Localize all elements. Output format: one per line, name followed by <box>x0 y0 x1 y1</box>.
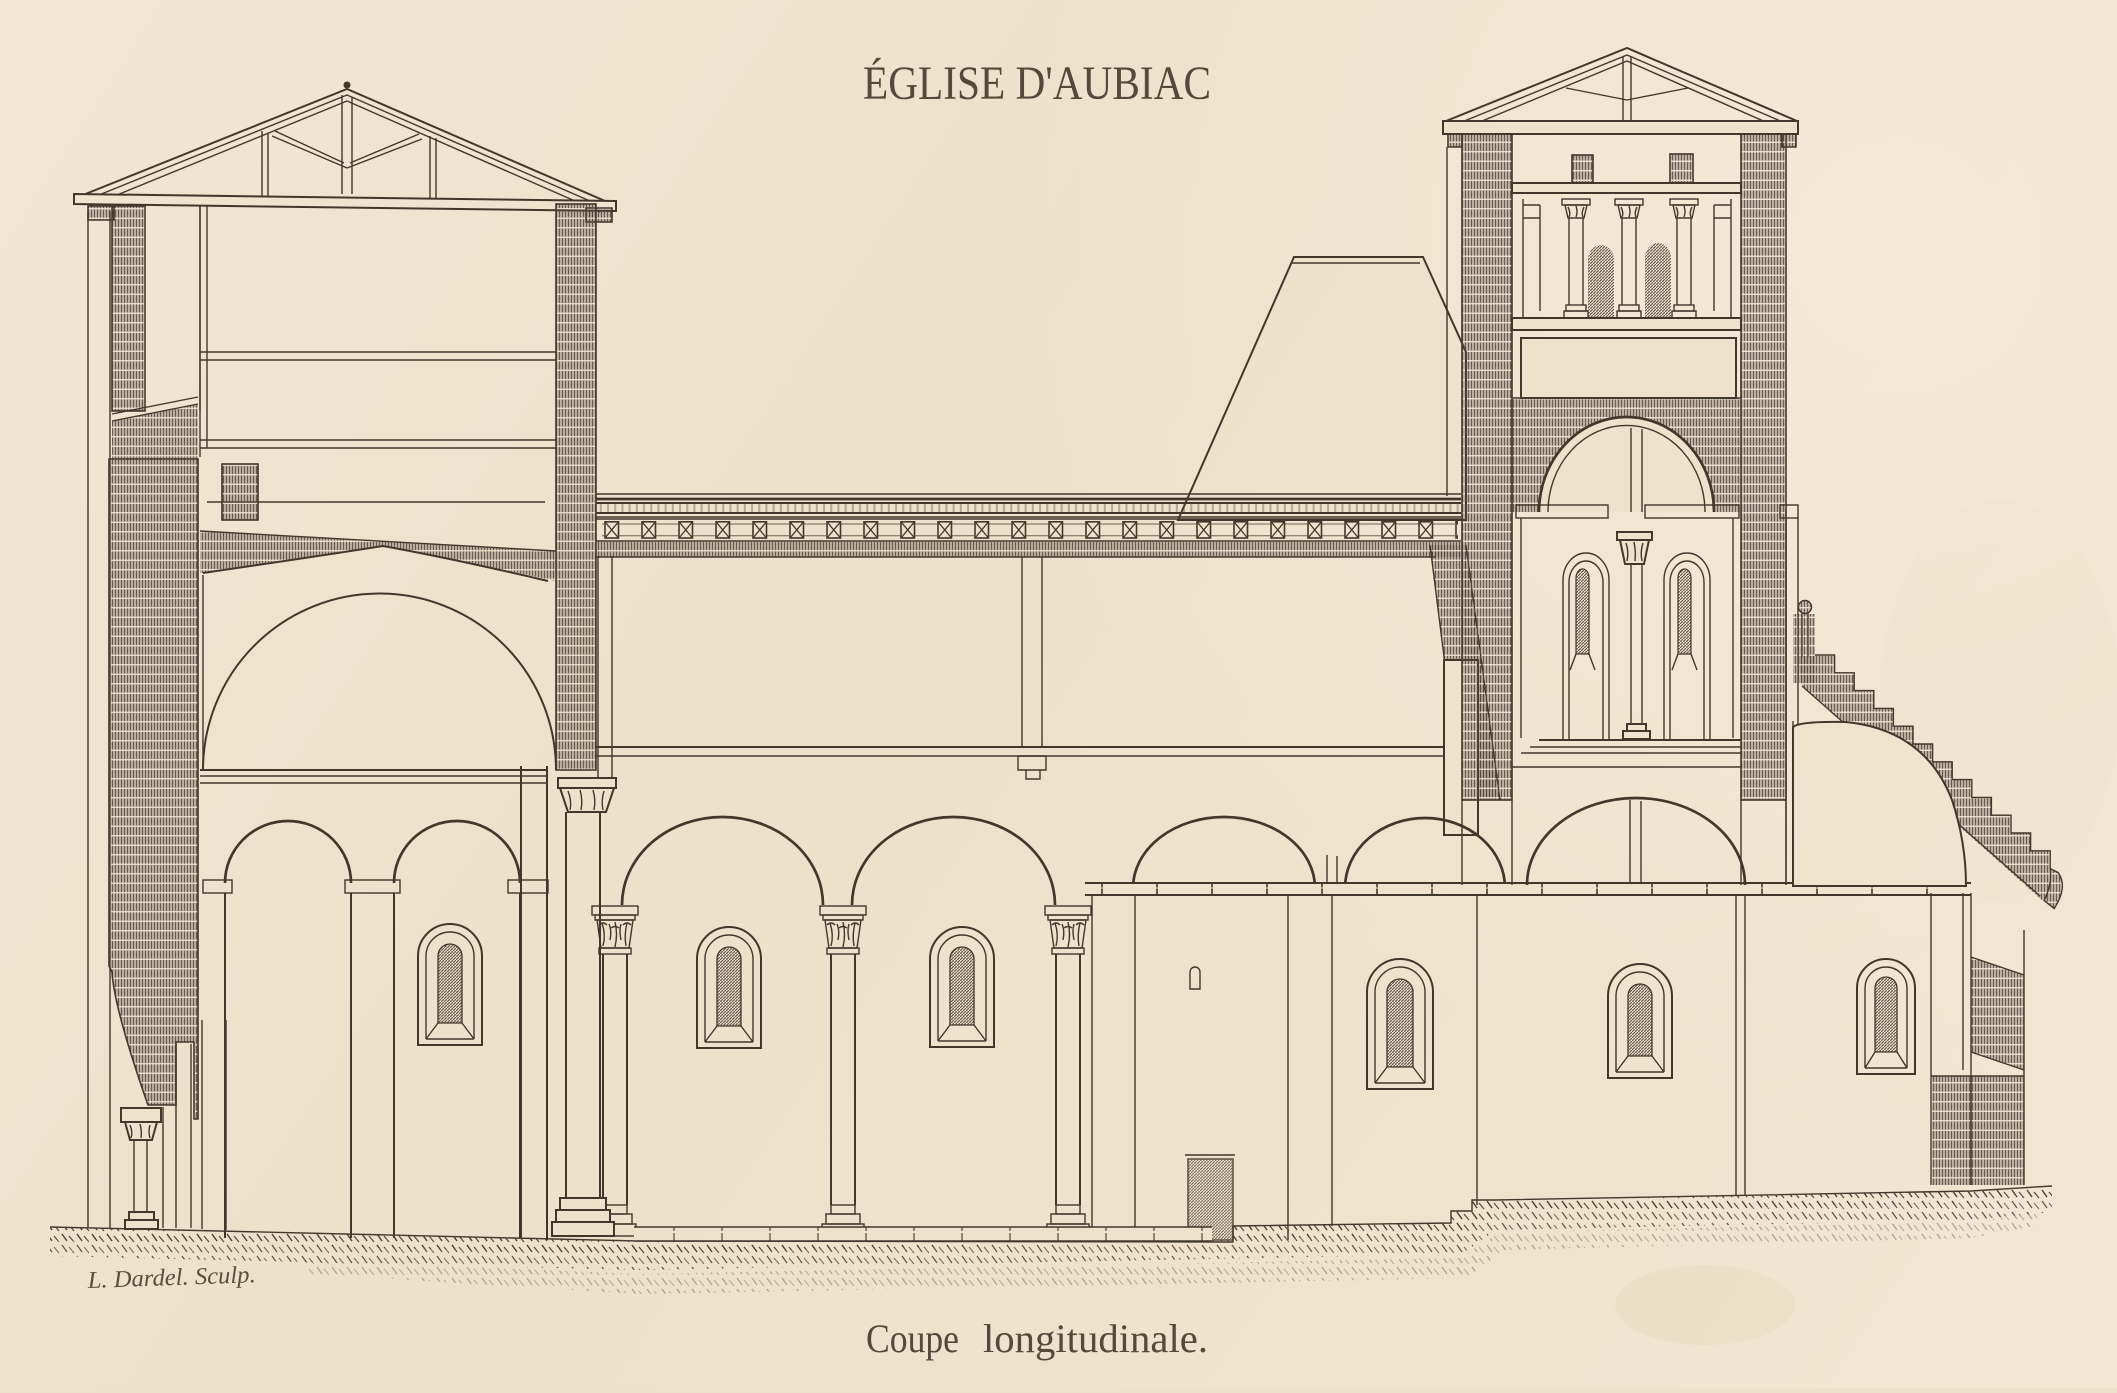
svg-text:Coupe: Coupe <box>866 1316 959 1361</box>
svg-text:longitudinale.: longitudinale. <box>983 1316 1208 1361</box>
svg-text:ÉGLISE D'AUBIAC: ÉGLISE D'AUBIAC <box>863 57 1211 110</box>
